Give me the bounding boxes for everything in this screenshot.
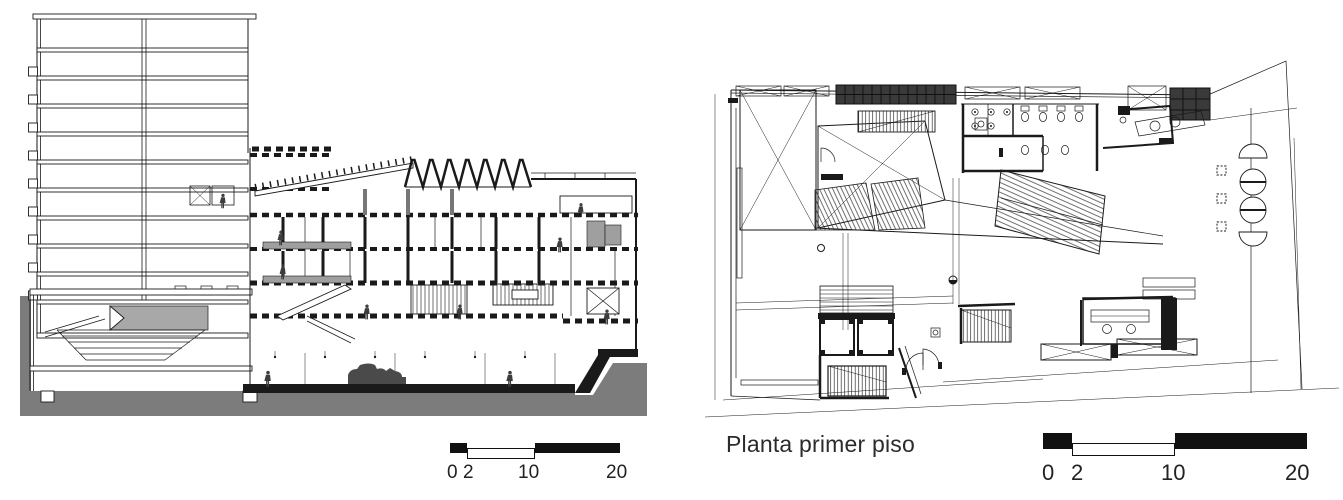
counter-room [1081,297,1177,350]
bench-symbols [1217,166,1226,231]
tower-section [29,14,258,402]
hatched-gallery-floors [411,284,619,314]
wc-fixtures [972,106,1083,157]
scale-segment [1072,443,1175,456]
lower-stair-core [958,304,1015,344]
tree-symbol [1239,144,1267,246]
hanging-lamps [274,351,526,358]
grand-stair [995,170,1105,254]
reception-offices [975,106,1205,148]
scale-segment [535,443,620,453]
entry-ramps [815,178,925,230]
upper-stair [858,111,935,132]
sloped-roof [255,159,413,196]
columns [282,189,541,283]
scale-label: 20 [1285,460,1309,486]
pool-section [110,306,208,330]
scale-label: 10 [518,462,539,484]
plan-caption: Planta primer piso [726,431,915,458]
first-floor-plan-drawing [703,48,1343,428]
scale-segment [1043,433,1072,449]
gallery-void-x [740,90,816,230]
sawtooth-roof [405,160,531,187]
locomotive-silhouette [348,364,406,385]
landscape-right [1217,108,1267,393]
building-section-drawing [15,3,650,418]
section-scale-bar: 0 2 10 20 [448,438,643,498]
scale-label: 20 [606,462,627,484]
scale-label: 10 [1161,460,1185,486]
scale-segment [467,448,535,459]
architectural-sheet: Planta primer piso 0 2 10 20 0 2 10 20 [0,0,1343,500]
main-entrance [899,346,942,398]
balcony-benches [263,242,351,283]
scale-label: 0 [1042,460,1054,486]
scale-segment [450,443,467,453]
roof-terrace [531,173,636,213]
scale-label: 2 [463,462,474,484]
scale-label: 2 [1071,460,1083,486]
restrooms-block [961,104,1099,173]
scale-segment [1175,433,1307,449]
plan-scale-bar: 0 2 10 20 [1041,429,1331,489]
basement-level [243,349,638,393]
skylight-grid-top [836,85,956,104]
museum-section [243,148,638,393]
elevator-core [818,286,895,398]
scale-label: 0 [447,462,458,484]
